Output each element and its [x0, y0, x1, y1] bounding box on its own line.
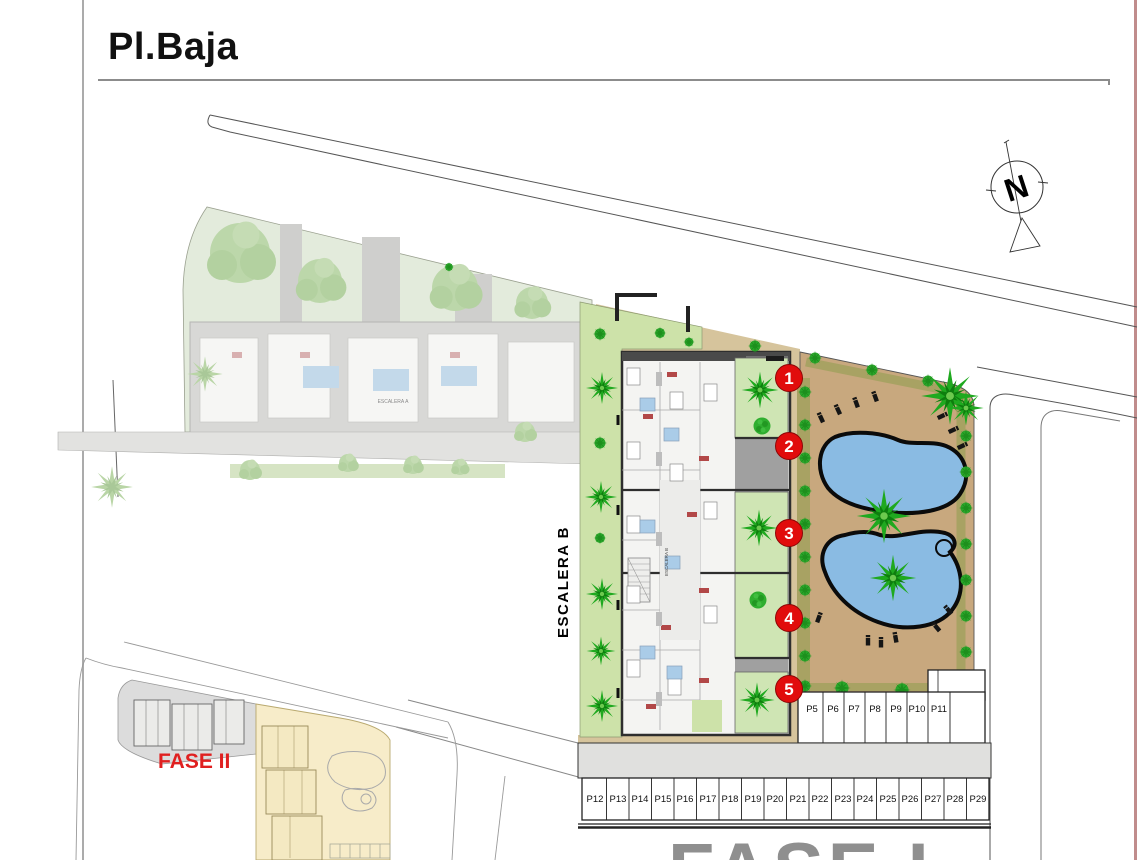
stair-b-inner-label: ESCALERA B	[664, 548, 669, 576]
parking-stall-label: P17	[700, 794, 717, 805]
parking-stall-label: P6	[827, 704, 839, 715]
stair-b-label: ESCALERA B	[555, 526, 572, 638]
parking-stall-label: P10	[909, 704, 926, 715]
parking-stall-label: P8	[869, 704, 881, 715]
faded-building: ESCALERA A	[190, 322, 586, 434]
inset-phase2-building	[134, 700, 244, 750]
bathroom-area	[640, 520, 655, 533]
bed-icon	[627, 516, 640, 533]
bed-icon	[670, 392, 683, 409]
bed-icon	[704, 502, 717, 519]
sun-lounger-icon	[866, 635, 870, 646]
faded-site: ESCALERA A	[58, 207, 592, 508]
wardrobe-icon	[656, 532, 662, 546]
svg-text:2: 2	[784, 437, 793, 456]
wardrobe-icon	[656, 692, 662, 706]
pool-upper	[820, 433, 966, 513]
parking-stall-label: P27	[925, 794, 942, 805]
driveway	[578, 743, 991, 778]
parking-stall-label: P15	[655, 794, 672, 805]
parking-stall-label: P11	[931, 704, 947, 715]
bed-icon	[627, 442, 640, 459]
parking-stall-label: P20	[767, 794, 784, 805]
sofa-icon	[667, 372, 677, 377]
parking-stall-label: P12	[587, 794, 604, 805]
bathroom-area	[664, 428, 679, 441]
parking-stall-label: P28	[947, 794, 964, 805]
svg-text:4: 4	[784, 609, 794, 628]
main-building: ESCALERA B	[618, 352, 790, 735]
north-compass-icon: N	[986, 140, 1048, 252]
bathroom-area	[640, 398, 655, 411]
unit-marker: 3	[776, 520, 803, 547]
parking-stall-label: P29	[970, 794, 987, 805]
phase1-label: FASE I	[668, 828, 933, 860]
parking-stall-label: P18	[722, 794, 739, 805]
faded-palm-icon	[91, 466, 133, 508]
wardrobe-icon	[656, 612, 662, 626]
sofa-icon	[699, 678, 709, 683]
wardrobe-icon	[656, 372, 662, 386]
bed-icon	[627, 586, 640, 603]
sofa-icon	[643, 414, 653, 419]
parking-stall-label: P5	[806, 704, 818, 715]
faded-tree-icon	[239, 460, 262, 481]
bed-icon	[670, 464, 683, 481]
parking-stall-label: P22	[812, 794, 829, 805]
parking-lower-row: P12 P13 P14 P15 P16 P17 P18 P19 P20 P21 …	[578, 778, 991, 828]
bed-icon	[627, 368, 640, 385]
parking-stall-label: P26	[902, 794, 919, 805]
parking-stall-label: P23	[835, 794, 852, 805]
parking-stall-label: P13	[610, 794, 627, 805]
parking-stall-label: P7	[848, 704, 860, 715]
parking-stall-label: P9	[890, 704, 902, 715]
parking-stall-label: P24	[857, 794, 874, 805]
wardrobe-icon	[656, 452, 662, 466]
round-bush-icon	[754, 418, 771, 435]
bed-icon	[704, 606, 717, 623]
sofa-icon	[699, 456, 709, 461]
svg-text:3: 3	[784, 524, 793, 543]
parking-stall-label: P25	[880, 794, 897, 805]
unit-marker: 4	[776, 605, 803, 632]
sofa-icon	[646, 704, 656, 709]
round-bush-icon	[750, 592, 767, 609]
bed-icon	[668, 678, 681, 695]
bathroom-area	[667, 666, 682, 679]
sofa-icon	[661, 625, 671, 630]
sofa-icon	[699, 588, 709, 593]
faded-road	[58, 432, 588, 464]
parking-stall-label: P19	[745, 794, 762, 805]
sofa-icon	[687, 512, 697, 517]
svg-text:5: 5	[784, 680, 793, 699]
parking-stall-label: P21	[790, 794, 807, 805]
bed-icon	[627, 660, 640, 677]
sun-lounger-icon	[879, 637, 883, 648]
unit-marker: 1	[776, 365, 803, 392]
bed-icon	[704, 384, 717, 401]
floor-plan-page: Pl.Baja	[0, 0, 1140, 860]
svg-text:1: 1	[784, 369, 793, 388]
parking-stall-label: P16	[677, 794, 694, 805]
unit-marker: 2	[776, 433, 803, 460]
phase2-label: FASE II	[158, 750, 230, 773]
bathroom-area	[640, 646, 655, 659]
inset-key-map: FASE II	[76, 642, 505, 860]
unit-marker: 5	[776, 676, 803, 703]
stair-a-inner-label: ESCALERA A	[378, 399, 410, 405]
parking-stall-label: P14	[632, 794, 649, 805]
site-plan-svg: ESCALERA A	[0, 0, 1140, 860]
